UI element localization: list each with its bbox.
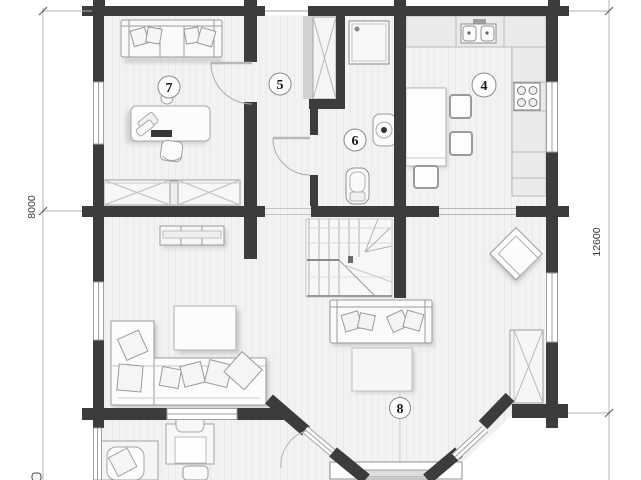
svg-text:5: 5 <box>277 78 284 93</box>
svg-text:6: 6 <box>352 134 359 149</box>
svg-text:12600: 12600 <box>591 227 603 256</box>
svg-text:8000: 8000 <box>26 195 38 219</box>
svg-text:8: 8 <box>397 402 404 417</box>
svg-text:4: 4 <box>481 79 488 94</box>
svg-text:7: 7 <box>166 81 173 96</box>
